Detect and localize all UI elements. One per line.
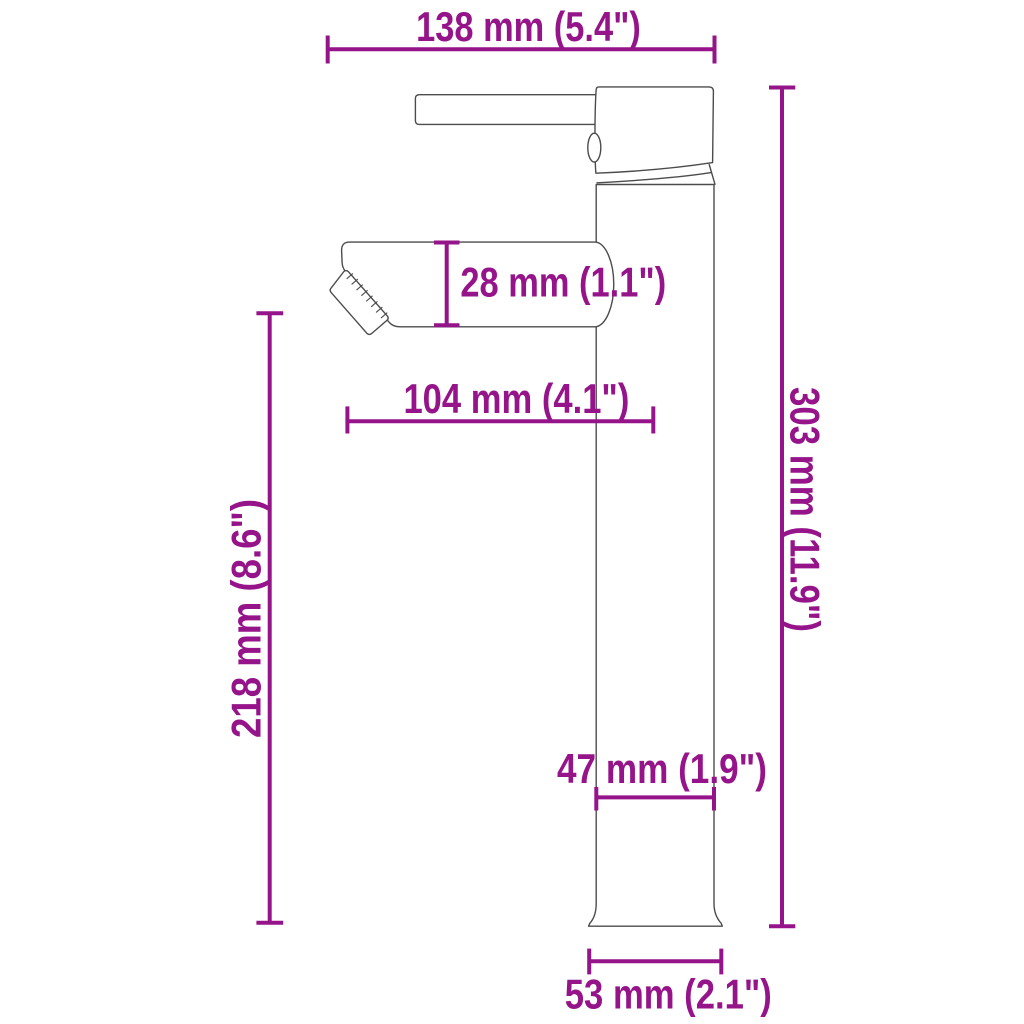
svg-text:53 mm (2.1"): 53 mm (2.1") xyxy=(565,971,772,1018)
svg-text:218 mm (8.6"): 218 mm (8.6") xyxy=(223,499,270,738)
svg-text:28 mm (1.1"): 28 mm (1.1") xyxy=(460,259,666,306)
svg-text:303 mm (11.9"): 303 mm (11.9") xyxy=(781,387,828,632)
svg-text:47 mm (1.9"): 47 mm (1.9") xyxy=(557,745,767,792)
svg-text:138 mm (5.4"): 138 mm (5.4") xyxy=(416,3,641,50)
svg-text:104 mm (4.1"): 104 mm (4.1") xyxy=(403,375,629,422)
